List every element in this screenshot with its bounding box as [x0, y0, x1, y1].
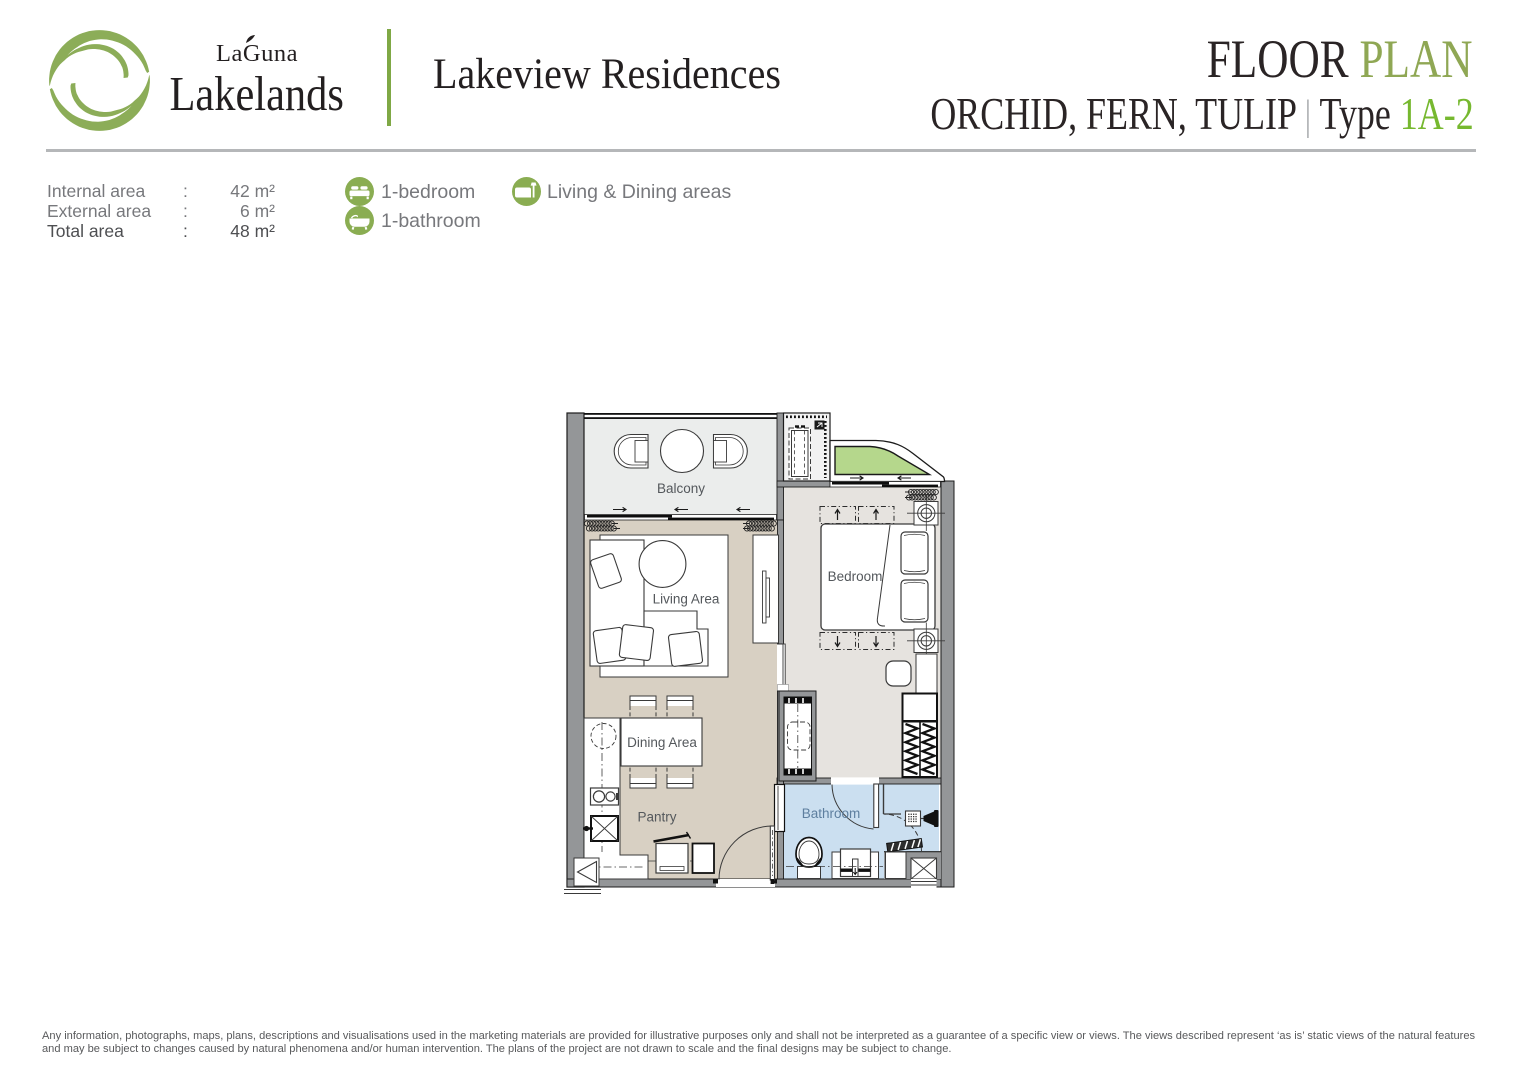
- svg-text:Balcony: Balcony: [657, 481, 705, 496]
- svg-text:Dining Area: Dining Area: [627, 735, 697, 750]
- svg-text:Pantry: Pantry: [637, 810, 676, 825]
- svg-text:Living Area: Living Area: [653, 592, 720, 607]
- svg-text:Bathroom: Bathroom: [802, 806, 861, 821]
- svg-text:Bedroom: Bedroom: [828, 569, 883, 584]
